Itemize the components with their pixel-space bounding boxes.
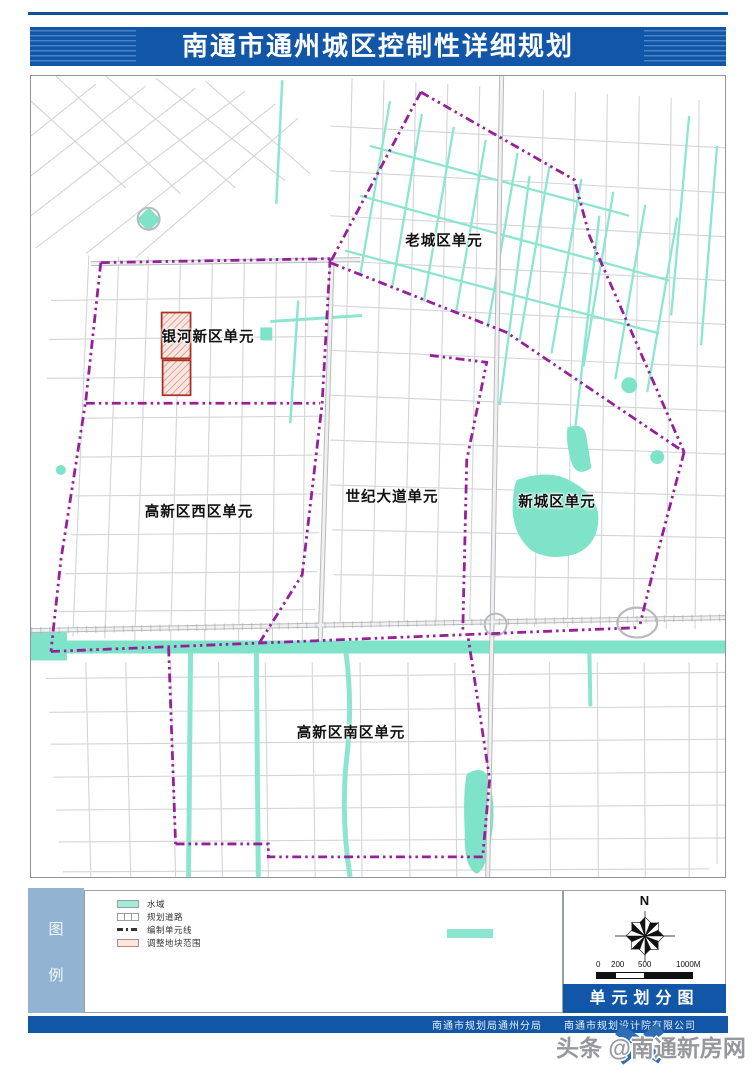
unit-label-hightech-west: 高新区西区单元 <box>145 501 254 522</box>
compass-rose-icon <box>613 904 677 968</box>
legend-item-unit-line: 编制单元线 <box>117 923 201 936</box>
unit-line-swatch <box>117 928 139 931</box>
map-drawing <box>31 76 725 877</box>
agency-left: 南通市规划局通州分局 <box>432 1017 542 1032</box>
major-roads <box>31 76 725 877</box>
unit-label-century-avenue: 世纪大道单元 <box>346 486 439 507</box>
water-swatch <box>117 900 139 908</box>
map-name-banner: 单元划分图 <box>563 984 726 1013</box>
legend-strip-char: 图 <box>28 918 84 939</box>
unit-label-old-town: 老城区单元 <box>405 230 483 251</box>
stray-water-fragment <box>447 929 493 938</box>
scale-bar-segments <box>596 972 693 979</box>
legend-strip: 图 例 <box>28 888 84 1013</box>
scale-bar: 0 200 500 1000M <box>596 960 696 982</box>
minor-roads <box>31 76 725 877</box>
unit-label-new-town: 新城区单元 <box>518 491 596 512</box>
planning-map-page: 南通市通州城区控制性详细规划 <box>0 0 756 1069</box>
legend-strip-char: 例 <box>28 964 84 985</box>
map-info-box: N 0 200 500 1000M <box>563 890 726 1013</box>
adjusted-parcel-swatch <box>117 939 139 947</box>
watermark-text: 头条 @南通新房网 <box>556 1029 746 1063</box>
top-rule <box>28 12 728 15</box>
legend-item-planned-road: 规划道路 <box>117 910 201 923</box>
title-banner: 南通市通州城区控制性详细规划 <box>30 27 726 66</box>
road-swatch <box>117 913 139 921</box>
page-title: 南通市通州城区控制性详细规划 <box>30 27 726 66</box>
legend-box: 水域 规划道路 编制单元线 调整地块范围 <box>84 890 563 1013</box>
unit-label-yinhe-new-district: 银河新区单元 <box>162 326 255 347</box>
water-features <box>31 80 725 877</box>
legend-item-water: 水域 <box>117 897 201 910</box>
map-canvas: 老城区单元 银河新区单元 高新区西区单元 世纪大道单元 新城区单元 高新区南区单… <box>30 75 726 878</box>
unit-label-hightech-south: 高新区南区单元 <box>297 722 406 743</box>
legend-item-adjusted-parcel: 调整地块范围 <box>117 936 201 949</box>
